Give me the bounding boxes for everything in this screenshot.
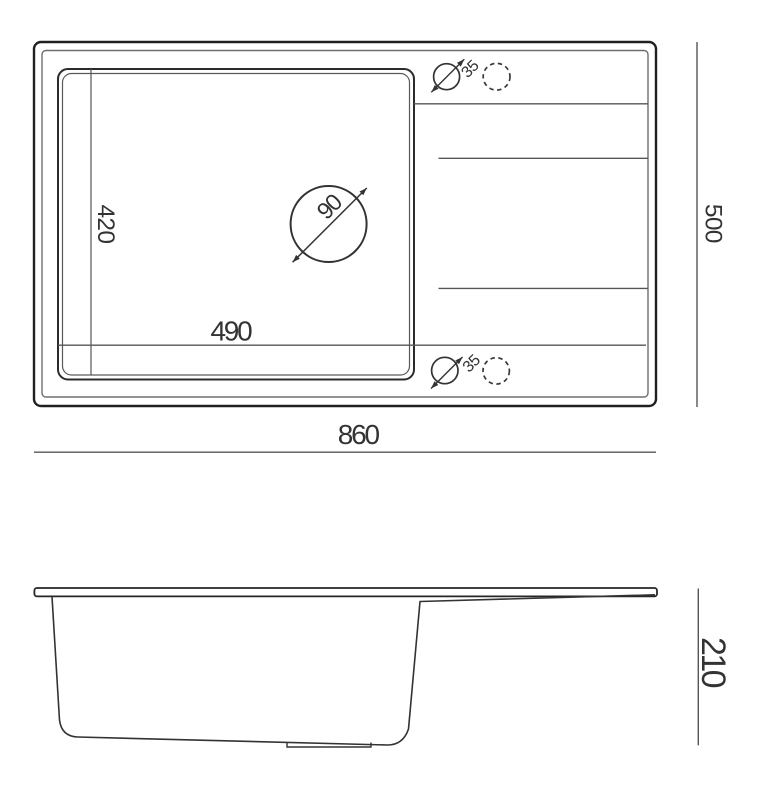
svg-text:860: 860 bbox=[338, 419, 380, 450]
svg-text:210: 210 bbox=[694, 637, 732, 688]
svg-text:500: 500 bbox=[700, 204, 727, 243]
svg-text:420: 420 bbox=[92, 205, 119, 244]
svg-text:490: 490 bbox=[210, 316, 252, 347]
